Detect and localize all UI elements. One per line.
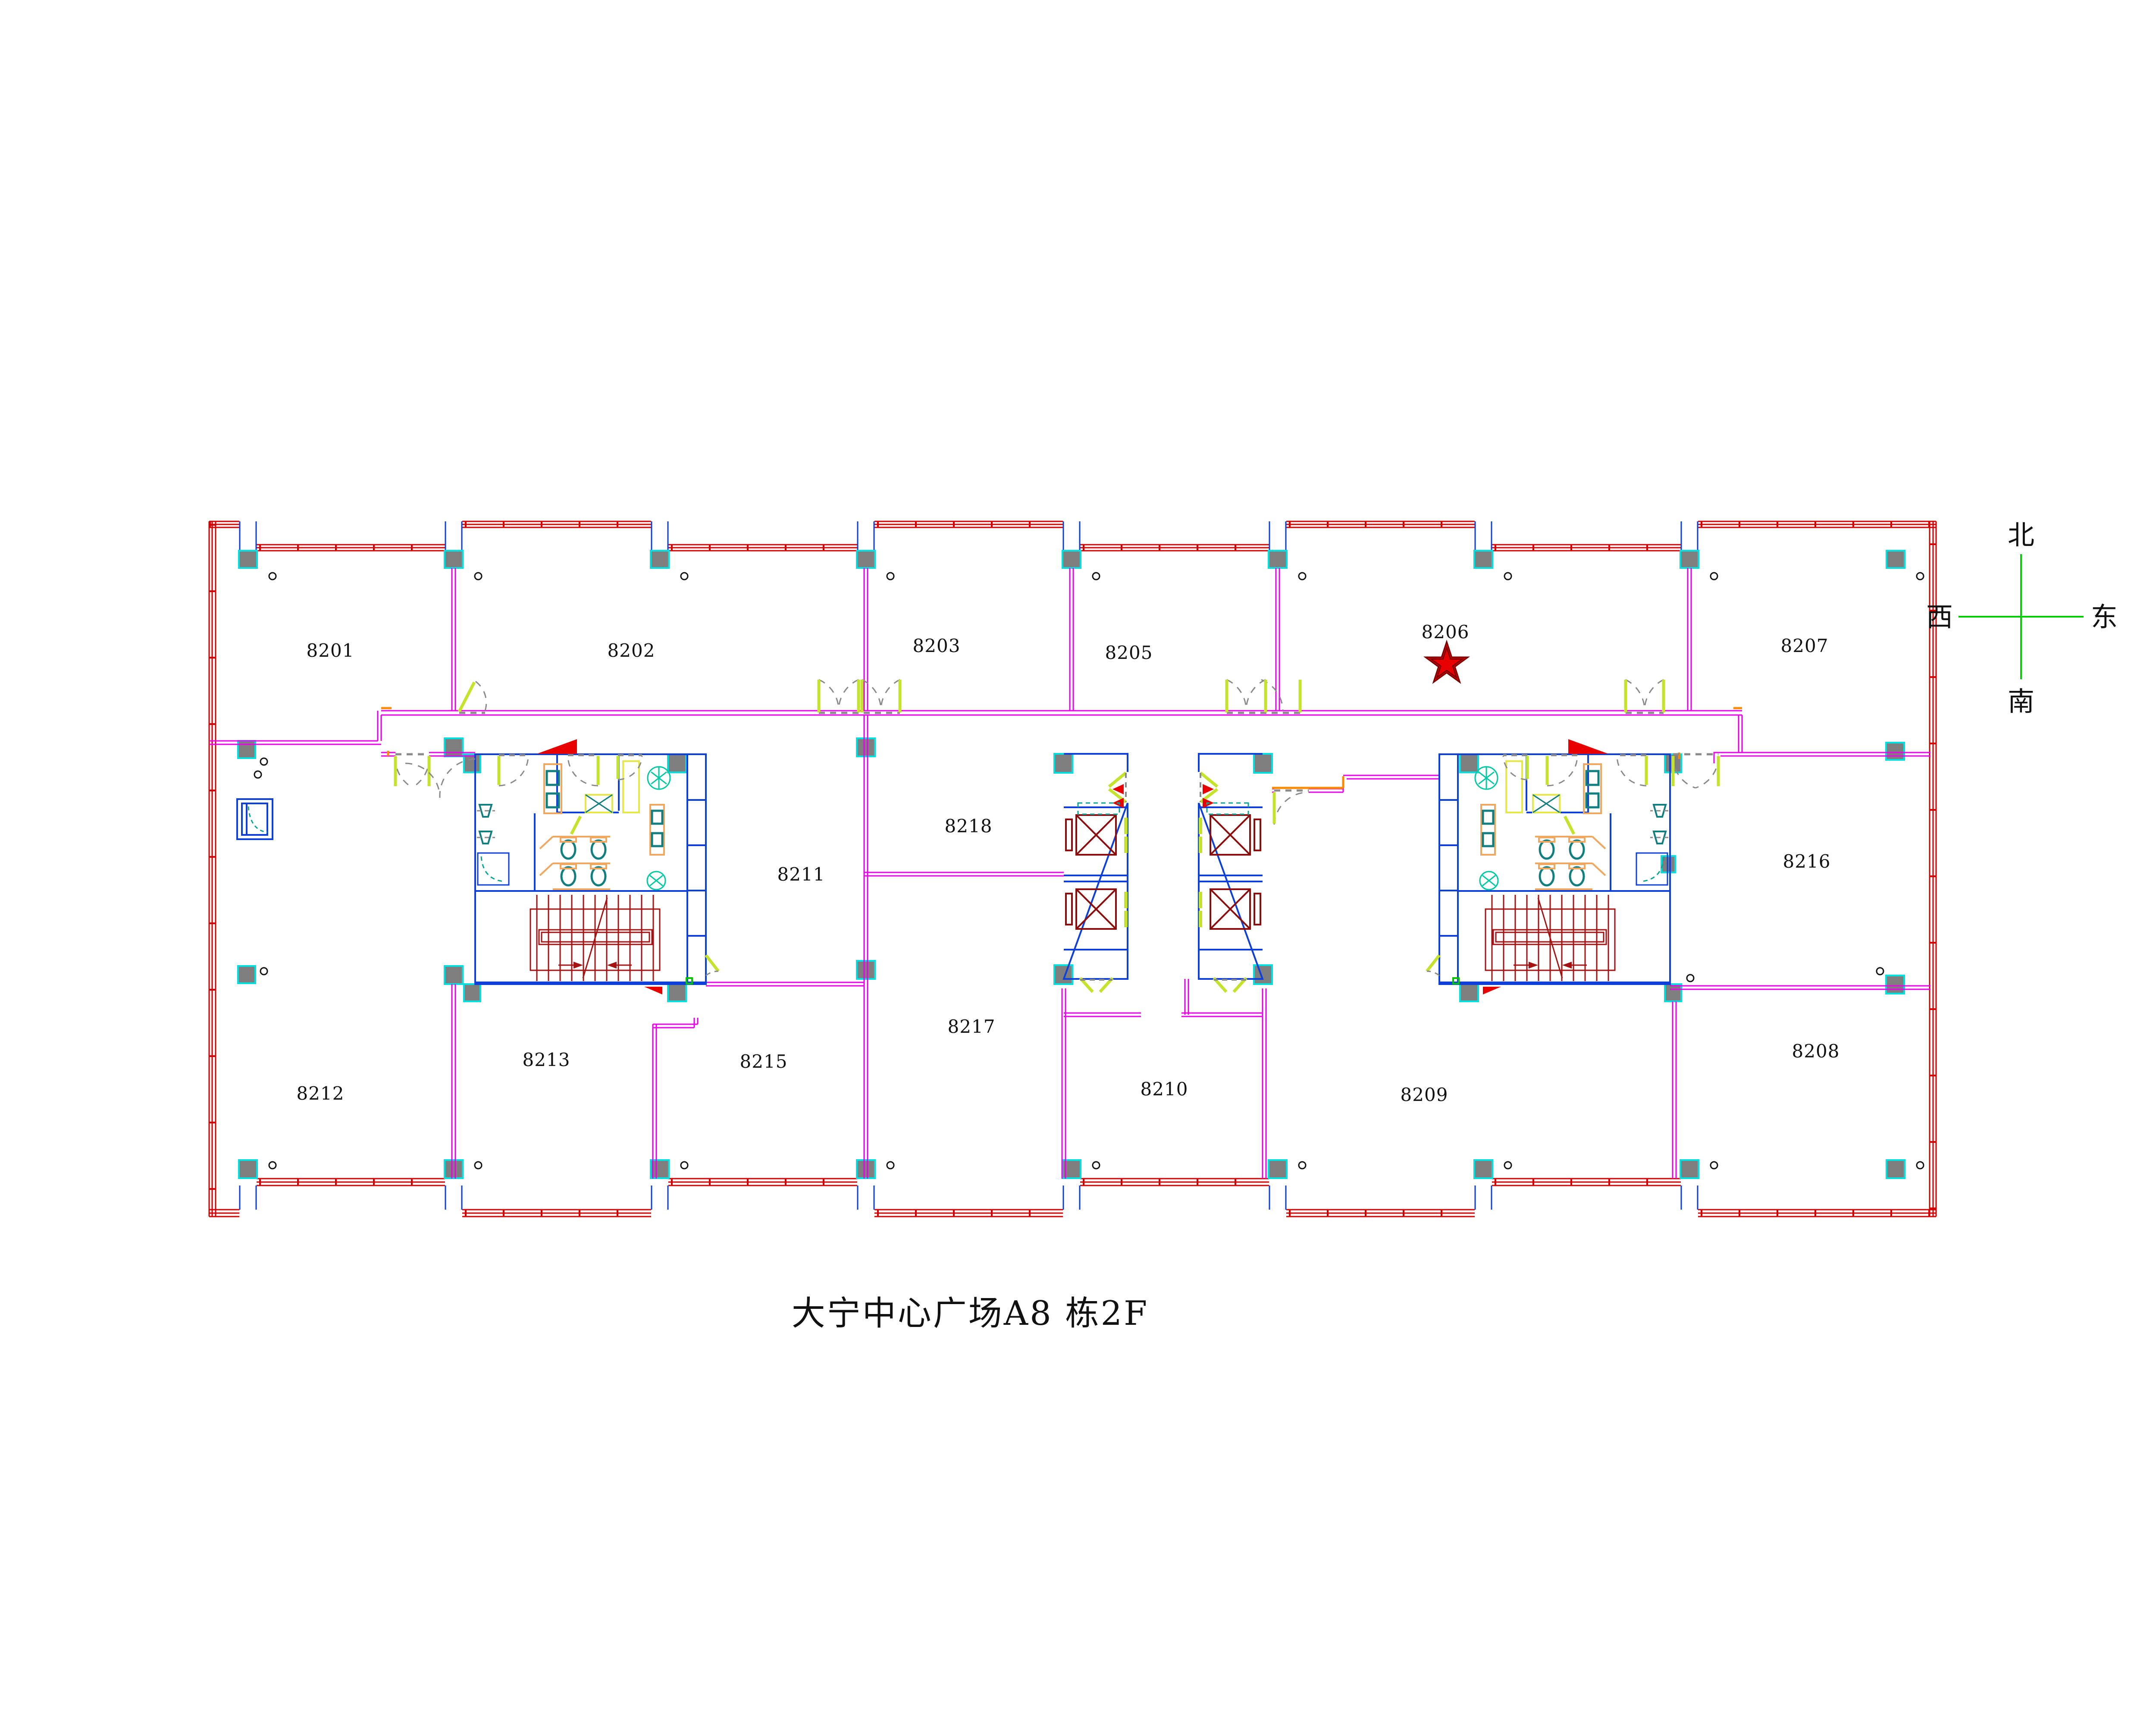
room-label-8212: 8212 — [297, 1083, 345, 1104]
core-right-toilets-stairs — [1427, 739, 1670, 994]
room-label-8215: 8215 — [740, 1051, 788, 1072]
structural-columns — [238, 551, 1905, 1178]
facade-bottom-recessed-bays — [257, 1179, 1681, 1186]
room-label-8206: 8206 — [1422, 621, 1470, 643]
facade-top-recessed-bays — [257, 545, 1681, 551]
room-label-8208: 8208 — [1792, 1041, 1840, 1062]
room-label-8203: 8203 — [913, 635, 961, 656]
floorplan-canvas[interactable]: 8201 8202 8203 8205 8206 8207 8211 8218 … — [0, 0, 2156, 1725]
compass-north-label: 北 — [2008, 519, 2034, 551]
room-8212-shaft-box — [237, 799, 273, 839]
room-label-8202: 8202 — [608, 640, 655, 661]
room-label-8201: 8201 — [307, 640, 354, 661]
elevator-bank-east — [1199, 754, 1263, 992]
room-label-8210: 8210 — [1141, 1079, 1188, 1100]
room-label-8207: 8207 — [1781, 635, 1829, 656]
facade-bottom-protruding-bays — [209, 1210, 1936, 1217]
core-left-toilets-stairs — [475, 739, 718, 994]
accent-orange-ticks — [381, 708, 1742, 788]
room-label-8217: 8217 — [948, 1016, 996, 1037]
corridor-doors — [395, 680, 1718, 825]
room-label-8205: 8205 — [1105, 642, 1153, 663]
room-labels: 8201 8202 8203 8205 8206 8207 8211 8218 … — [297, 621, 1840, 1105]
compass-south-label: 南 — [2008, 686, 2034, 717]
compass-west-label: 西 — [1926, 601, 1953, 633]
elevator-bank-west — [1064, 754, 1128, 992]
room-label-8213: 8213 — [523, 1049, 570, 1070]
facade-connectors — [240, 521, 1698, 1210]
highlight-star-icon — [1426, 642, 1468, 682]
facade-top-protruding-bays — [209, 521, 1936, 527]
room-label-8218: 8218 — [945, 815, 993, 837]
room-label-8209: 8209 — [1401, 1084, 1448, 1105]
room-label-8211: 8211 — [777, 864, 825, 885]
cad-floorplan-page: 8201 8202 8203 8205 8206 8207 8211 8218 … — [0, 0, 2156, 1725]
compass-rose: 北 南 东 西 — [1926, 519, 2118, 717]
room-label-8216: 8216 — [1783, 851, 1831, 872]
drawing-title: 大宁中心广场A8 栋2F — [792, 1294, 1149, 1333]
compass-east-label: 东 — [2091, 601, 2118, 633]
